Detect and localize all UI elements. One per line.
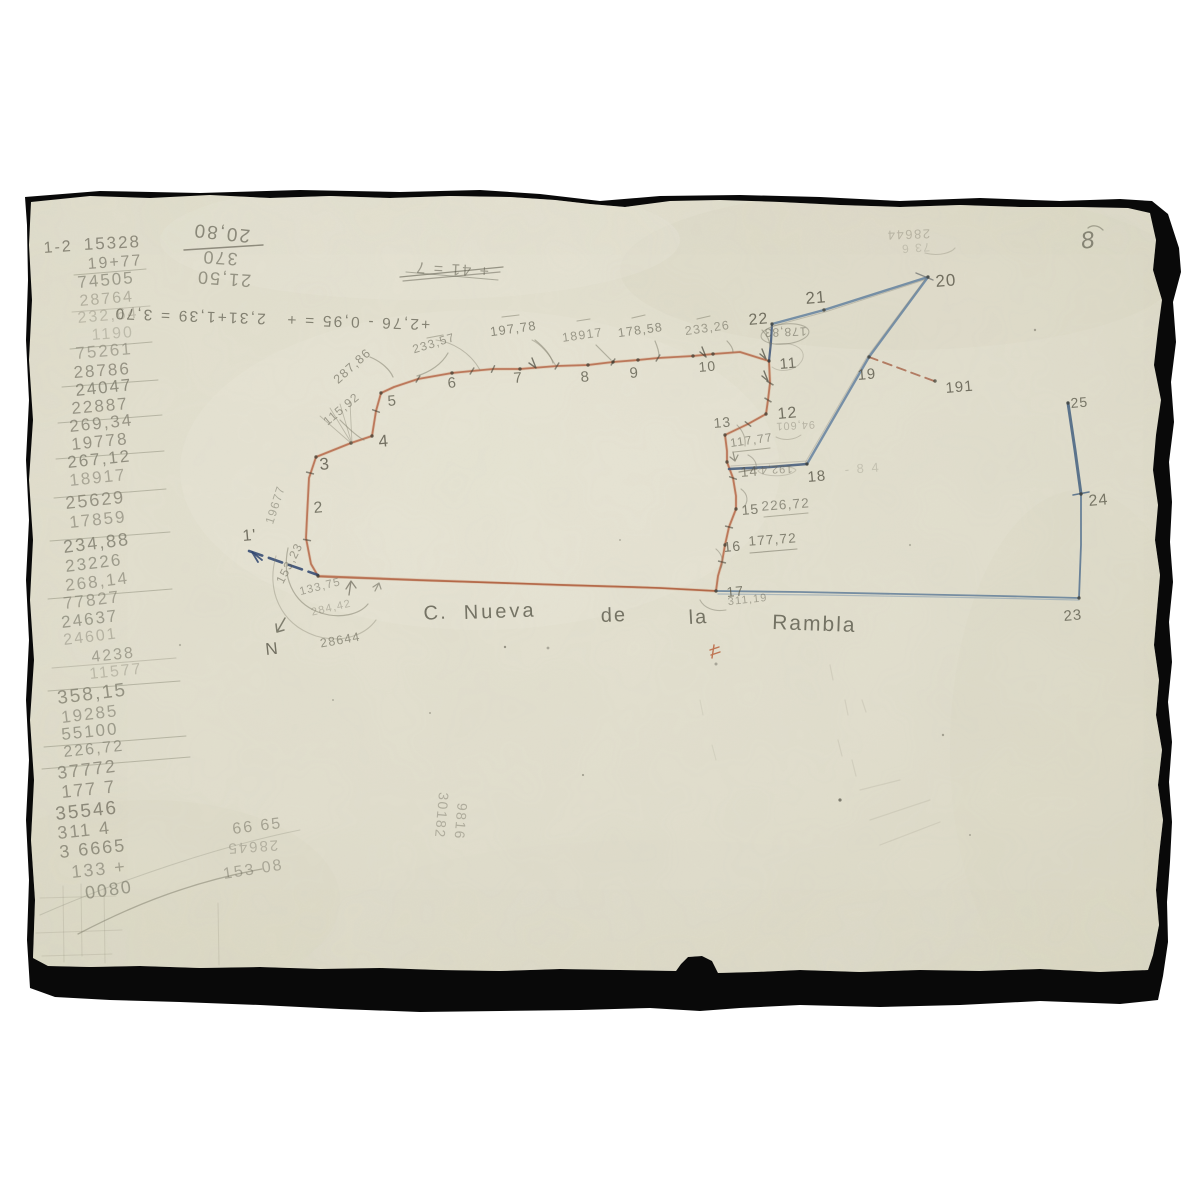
svg-text:4: 4 bbox=[378, 431, 390, 451]
svg-text:7: 7 bbox=[513, 369, 524, 387]
svg-text:6: 6 bbox=[447, 374, 458, 392]
svg-text:191: 191 bbox=[945, 378, 974, 397]
svg-text:28645: 28645 bbox=[226, 836, 279, 857]
svg-text:23: 23 bbox=[1063, 606, 1083, 625]
svg-text:5: 5 bbox=[387, 392, 398, 410]
svg-text:10: 10 bbox=[698, 358, 717, 375]
svg-text:C.: C. bbox=[423, 601, 448, 625]
svg-text:la: la bbox=[688, 606, 709, 629]
svg-text:178,83: 178,83 bbox=[764, 324, 807, 339]
svg-text:Nueva: Nueva bbox=[463, 599, 537, 624]
svg-text:192,4: 192,4 bbox=[760, 462, 793, 475]
svg-text:de: de bbox=[600, 604, 627, 627]
svg-text:1-2: 1-2 bbox=[43, 238, 73, 257]
svg-text:15328: 15328 bbox=[83, 232, 141, 254]
svg-text:370: 370 bbox=[201, 247, 238, 269]
svg-text:9: 9 bbox=[629, 364, 640, 382]
svg-text:8: 8 bbox=[580, 368, 591, 386]
svg-text:25: 25 bbox=[1070, 394, 1089, 411]
svg-text:- 8 4: - 8 4 bbox=[844, 460, 881, 477]
svg-text:N: N bbox=[264, 639, 278, 659]
svg-text:20: 20 bbox=[935, 270, 957, 291]
svg-text:28644: 28644 bbox=[886, 226, 930, 243]
svg-text:21: 21 bbox=[805, 287, 827, 308]
svg-text:15: 15 bbox=[741, 501, 760, 518]
svg-text:Rambla: Rambla bbox=[772, 611, 857, 637]
svg-text:19: 19 bbox=[857, 365, 877, 384]
svg-text:94,601: 94,601 bbox=[775, 418, 815, 432]
svg-text:13: 13 bbox=[713, 414, 732, 431]
svg-text:1': 1' bbox=[242, 527, 257, 545]
svg-text:9816: 9816 bbox=[451, 802, 470, 840]
svg-text:24: 24 bbox=[1088, 491, 1109, 510]
svg-text:3: 3 bbox=[319, 454, 331, 474]
svg-text:18: 18 bbox=[807, 467, 827, 486]
svg-text:2: 2 bbox=[313, 499, 324, 517]
svg-text:21,50: 21,50 bbox=[195, 267, 251, 291]
svg-text:16: 16 bbox=[723, 538, 742, 555]
